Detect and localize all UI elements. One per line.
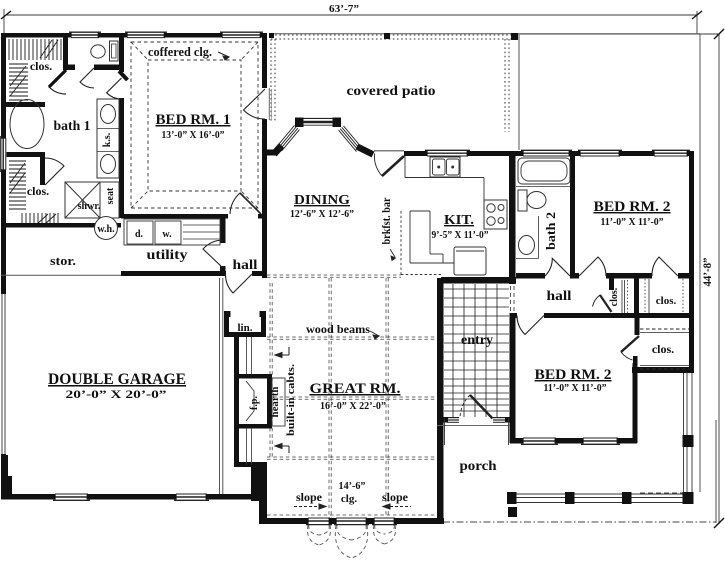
svg-text:shwr.: shwr. — [78, 201, 101, 212]
svg-text:DINING: DINING — [294, 193, 350, 208]
svg-text:11’-0” X 11’-0”: 11’-0” X 11’-0” — [601, 216, 664, 228]
svg-text:clos.: clos. — [656, 295, 677, 307]
svg-text:12’-6” X 12’-6”: 12’-6” X 12’-6” — [290, 208, 354, 220]
svg-text:hall: hall — [547, 289, 572, 304]
svg-text:GREAT RM.: GREAT RM. — [310, 381, 401, 397]
svg-text:coffered clg.: coffered clg. — [148, 44, 212, 59]
svg-text:brkfst. bar: brkfst. bar — [379, 197, 393, 245]
svg-text:63’-7”: 63’-7” — [329, 3, 359, 15]
svg-text:stor.: stor. — [50, 253, 76, 268]
svg-text:entry: entry — [461, 333, 493, 348]
svg-text:utility: utility — [147, 248, 188, 263]
svg-text:clos.: clos. — [30, 59, 52, 73]
svg-text:w.: w. — [162, 229, 172, 240]
svg-text:covered patio: covered patio — [347, 84, 436, 99]
svg-text:9’-5” X 11’-0”: 9’-5” X 11’-0” — [432, 229, 489, 241]
svg-text:clos.: clos. — [652, 342, 674, 356]
svg-text:20’-0” X 20’-0”: 20’-0” X 20’-0” — [66, 387, 167, 401]
svg-text:d.: d. — [135, 229, 144, 240]
svg-text:slope: slope — [296, 492, 322, 504]
svg-text:f.p.: f.p. — [249, 396, 260, 410]
svg-text:KIT.: KIT. — [444, 213, 474, 228]
svg-text:14’-6”: 14’-6” — [339, 480, 366, 492]
svg-text:16’-0” X 22’-0”: 16’-0” X 22’-0” — [320, 400, 386, 412]
svg-text:BED RM. 2: BED RM. 2 — [594, 199, 671, 215]
svg-text:w.h.: w.h. — [97, 224, 115, 235]
svg-text:44’-8”: 44’-8” — [702, 257, 714, 286]
svg-text:wood beams: wood beams — [306, 322, 370, 336]
svg-text:porch: porch — [460, 459, 497, 474]
svg-text:hall: hall — [233, 258, 258, 273]
svg-text:BED RM. 2: BED RM. 2 — [535, 367, 612, 383]
svg-text:hearth: hearth — [270, 386, 281, 417]
svg-text:slope: slope — [382, 492, 408, 504]
svg-text:clos.: clos. — [27, 184, 49, 198]
svg-text:k.s.: k.s. — [102, 132, 113, 147]
svg-text:DOUBLE GARAGE: DOUBLE GARAGE — [48, 371, 186, 388]
svg-text:seat: seat — [105, 187, 116, 204]
svg-text:bath 2: bath 2 — [543, 212, 558, 250]
svg-text:11’-0” X 11’-0”: 11’-0” X 11’-0” — [544, 382, 607, 394]
svg-text:clos.: clos. — [609, 287, 620, 306]
svg-text:built-in cabts.: built-in cabts. — [286, 363, 297, 436]
svg-text:clg.: clg. — [341, 493, 357, 505]
svg-text:BED RM. 1: BED RM. 1 — [156, 112, 231, 128]
svg-text:bath 1: bath 1 — [54, 119, 91, 134]
svg-text:lin.: lin. — [238, 322, 253, 334]
svg-text:13’-0” X 16’-0”: 13’-0” X 16’-0” — [162, 129, 225, 141]
